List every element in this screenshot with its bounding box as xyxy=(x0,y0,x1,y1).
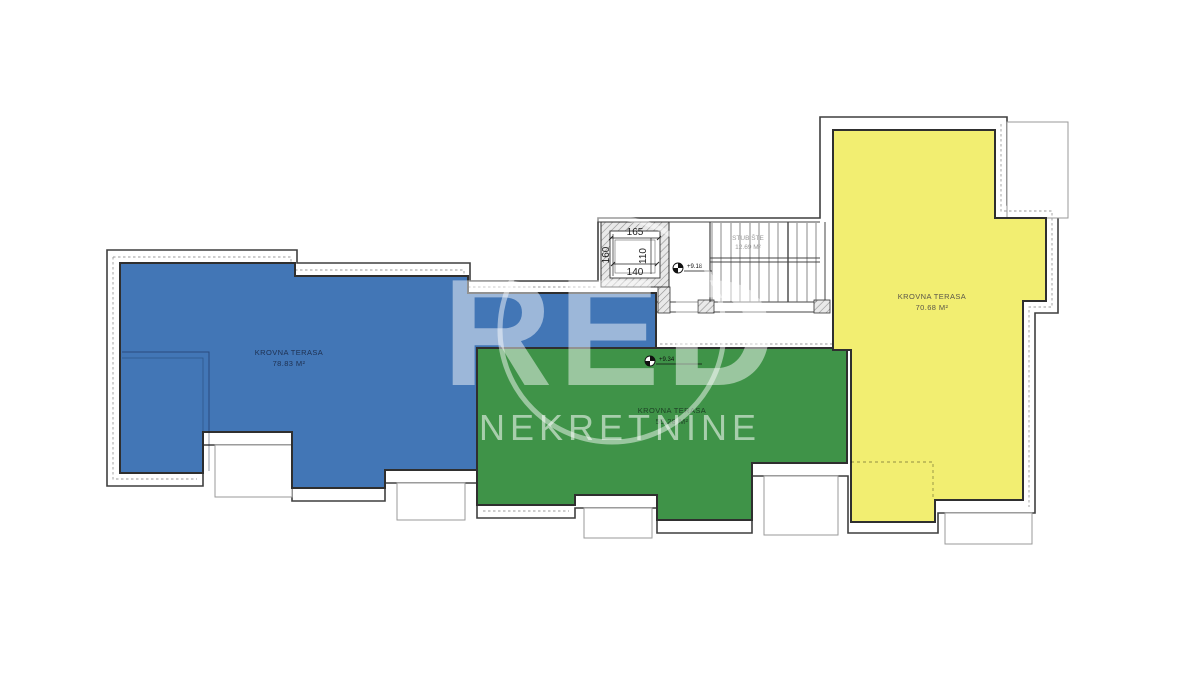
neighbour-roof-outline xyxy=(1007,122,1068,218)
column xyxy=(814,300,830,313)
lower-roof-notch xyxy=(764,476,838,535)
blue-terrace-area: 78.83 M² xyxy=(273,359,306,368)
elevator-dim-top: 165 xyxy=(627,227,644,238)
watermark-brand-text: NEKRETNINE xyxy=(479,407,761,448)
lower-roof-notch xyxy=(945,513,1032,544)
floor-plan-page: KROVNA TERASA 78.83 M² KROVNA TERASA 55.… xyxy=(0,0,1200,695)
lower-roof-notch xyxy=(397,483,465,520)
lower-roof-notch xyxy=(584,508,652,538)
lower-roof-notch xyxy=(215,445,292,497)
floor-plan-svg: KROVNA TERASA 78.83 M² KROVNA TERASA 55.… xyxy=(0,0,1200,695)
yellow-terrace-area: 70.68 M² xyxy=(916,303,949,312)
watermark-logo-text: RED xyxy=(443,248,782,418)
watermark: RED NEKRETNINE xyxy=(443,218,782,448)
staircase-label: STUBIŠTE xyxy=(732,233,764,242)
blue-terrace-label: KROVNA TERASA xyxy=(255,348,323,357)
yellow-terrace-label: KROVNA TERASA xyxy=(898,292,966,301)
